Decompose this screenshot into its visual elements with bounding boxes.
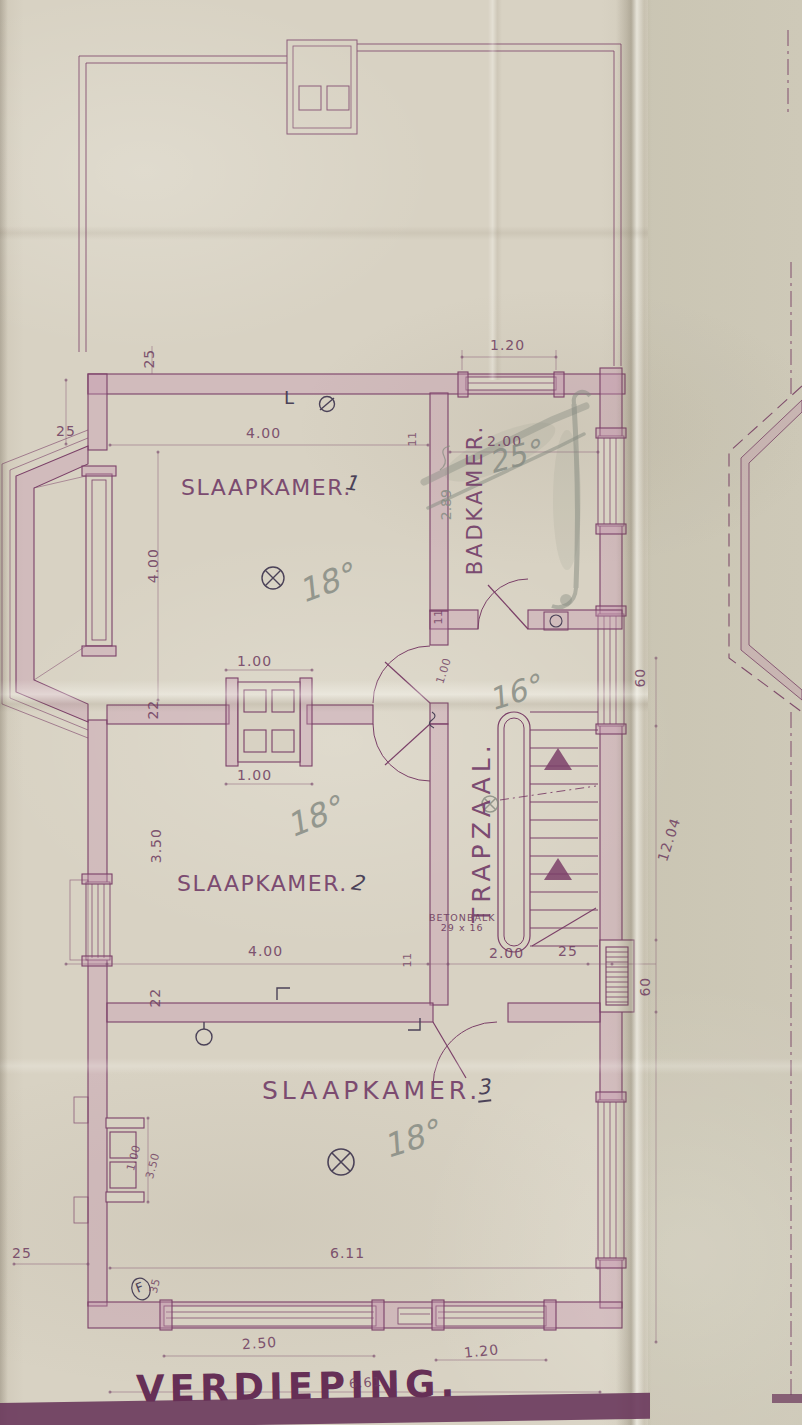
- bay-window-frame: [86, 474, 112, 646]
- wall-sl1-sl2-right: [307, 705, 373, 724]
- dim-window-250: 2.50: [242, 1335, 278, 1353]
- wall-sl1-sl2-left: [107, 705, 229, 724]
- window-bottom-mid: [398, 1308, 432, 1324]
- door-sl2: [373, 724, 430, 781]
- pencil-dim-badkamer: 2.89: [439, 489, 454, 520]
- dim-bottomleft-25: 25: [12, 1246, 32, 1261]
- room-label-slaapkamer-1: SLAAPKAMER.: [181, 476, 352, 500]
- window-right-sl3: [596, 1092, 626, 1268]
- dim-sl1-width: 4.00: [246, 426, 281, 441]
- dim-sl2-22: 22: [146, 700, 161, 720]
- switch-symbol-sl3: [196, 1022, 212, 1045]
- stair-rail-outer: [498, 712, 530, 952]
- outer-walls: [88, 368, 625, 1328]
- dim-chimney-top: 1.00: [237, 654, 272, 669]
- dim-total-661: 6.61: [349, 1375, 383, 1392]
- dim-trapzaal-25: 25: [558, 944, 578, 959]
- window-right-badkamer: [596, 428, 626, 534]
- wall-trapzaal-west: [430, 724, 448, 1005]
- dim-window-60: 60: [633, 668, 648, 688]
- window-right-radiator: [600, 940, 634, 1012]
- dim-sl1-height: 4.00: [146, 548, 161, 583]
- dim-sl2-width: 4.00: [248, 944, 283, 959]
- dim-25-left: 25: [56, 424, 76, 439]
- roof-outline: [79, 40, 621, 366]
- wall-sl2-sl3-right: [508, 1003, 600, 1022]
- wall-notches-left-sl3: [74, 1097, 88, 1223]
- chimney-sl1-sl2: [226, 678, 312, 766]
- stair-rail-inner: [504, 718, 524, 946]
- betonbalk-note: BETONBALK 29 x 16: [429, 913, 495, 934]
- dim-wall-11-top: 11: [407, 432, 419, 447]
- room-label-trapzaal: TRAPZAAL.: [468, 732, 496, 932]
- dim-badkamer-window: 1.20: [490, 338, 525, 353]
- dim-sl3-22: 22: [148, 988, 163, 1008]
- room-number-3: 3: [476, 1075, 492, 1102]
- wall-left-lower: [88, 720, 107, 1306]
- adjacent-plan-fragment: [729, 30, 802, 1396]
- switch-symbol-sl1: [320, 397, 335, 412]
- pen-corner-mark-1: [277, 988, 290, 1000]
- dim-chimney-bottom: 1.00: [237, 768, 272, 783]
- pen-letter-l: L: [284, 388, 294, 408]
- wall-badkamer-south-right: [528, 610, 622, 629]
- betonbalk-note-line2: 29 x 16: [429, 923, 495, 933]
- staircase: [498, 712, 598, 952]
- adjacent-bay-wall: [741, 400, 802, 700]
- stair-winder: [532, 908, 596, 946]
- dim-wall-11-bottom: 11: [402, 953, 414, 968]
- roof-chimney-block: [287, 40, 357, 134]
- stair-climb-line: [500, 786, 596, 800]
- ceiling-light-sl3: [328, 1149, 354, 1175]
- door-sl1: [373, 646, 430, 703]
- dim-trapzaal-width: 2.00: [489, 946, 524, 961]
- stair-arrow-up-2: [544, 858, 572, 880]
- ceiling-light-sl1: [262, 567, 284, 589]
- bay-wall: [16, 446, 88, 722]
- dim-sl3-width: 6.11: [330, 1246, 365, 1261]
- room-label-slaapkamer-3: SLAAPKAMER.: [262, 1077, 481, 1105]
- property-dashdot-line: [788, 30, 791, 1396]
- dim-wall-11-badkamer: 11: [433, 610, 445, 625]
- blueprint-paper: SLAAPKAMER. 1 SLAAPKAMER. 2 SLAAPKAMER. …: [0, 0, 802, 1425]
- stair-arrow-up-1: [544, 748, 572, 770]
- pier-landing: [430, 703, 448, 724]
- bay-window: [2, 430, 116, 738]
- wall-left-upper: [88, 374, 107, 450]
- dim-radiator-60: 60: [638, 977, 653, 997]
- plan-title: VERDIEPING.: [136, 1364, 460, 1410]
- stair-treads: [530, 712, 598, 946]
- pen-marks: [129, 397, 562, 1303]
- window-sill-box: [70, 880, 88, 960]
- window-left-sl2: [70, 874, 112, 966]
- room-label-badkamer: BADKAMER.: [464, 420, 487, 580]
- floor-plan-drawing: [0, 0, 802, 1425]
- dim-25-top: 25: [142, 349, 157, 369]
- room-label-slaapkamer-2: SLAAPKAMER.: [177, 872, 348, 896]
- dim-sl2-height: 3.50: [149, 828, 164, 863]
